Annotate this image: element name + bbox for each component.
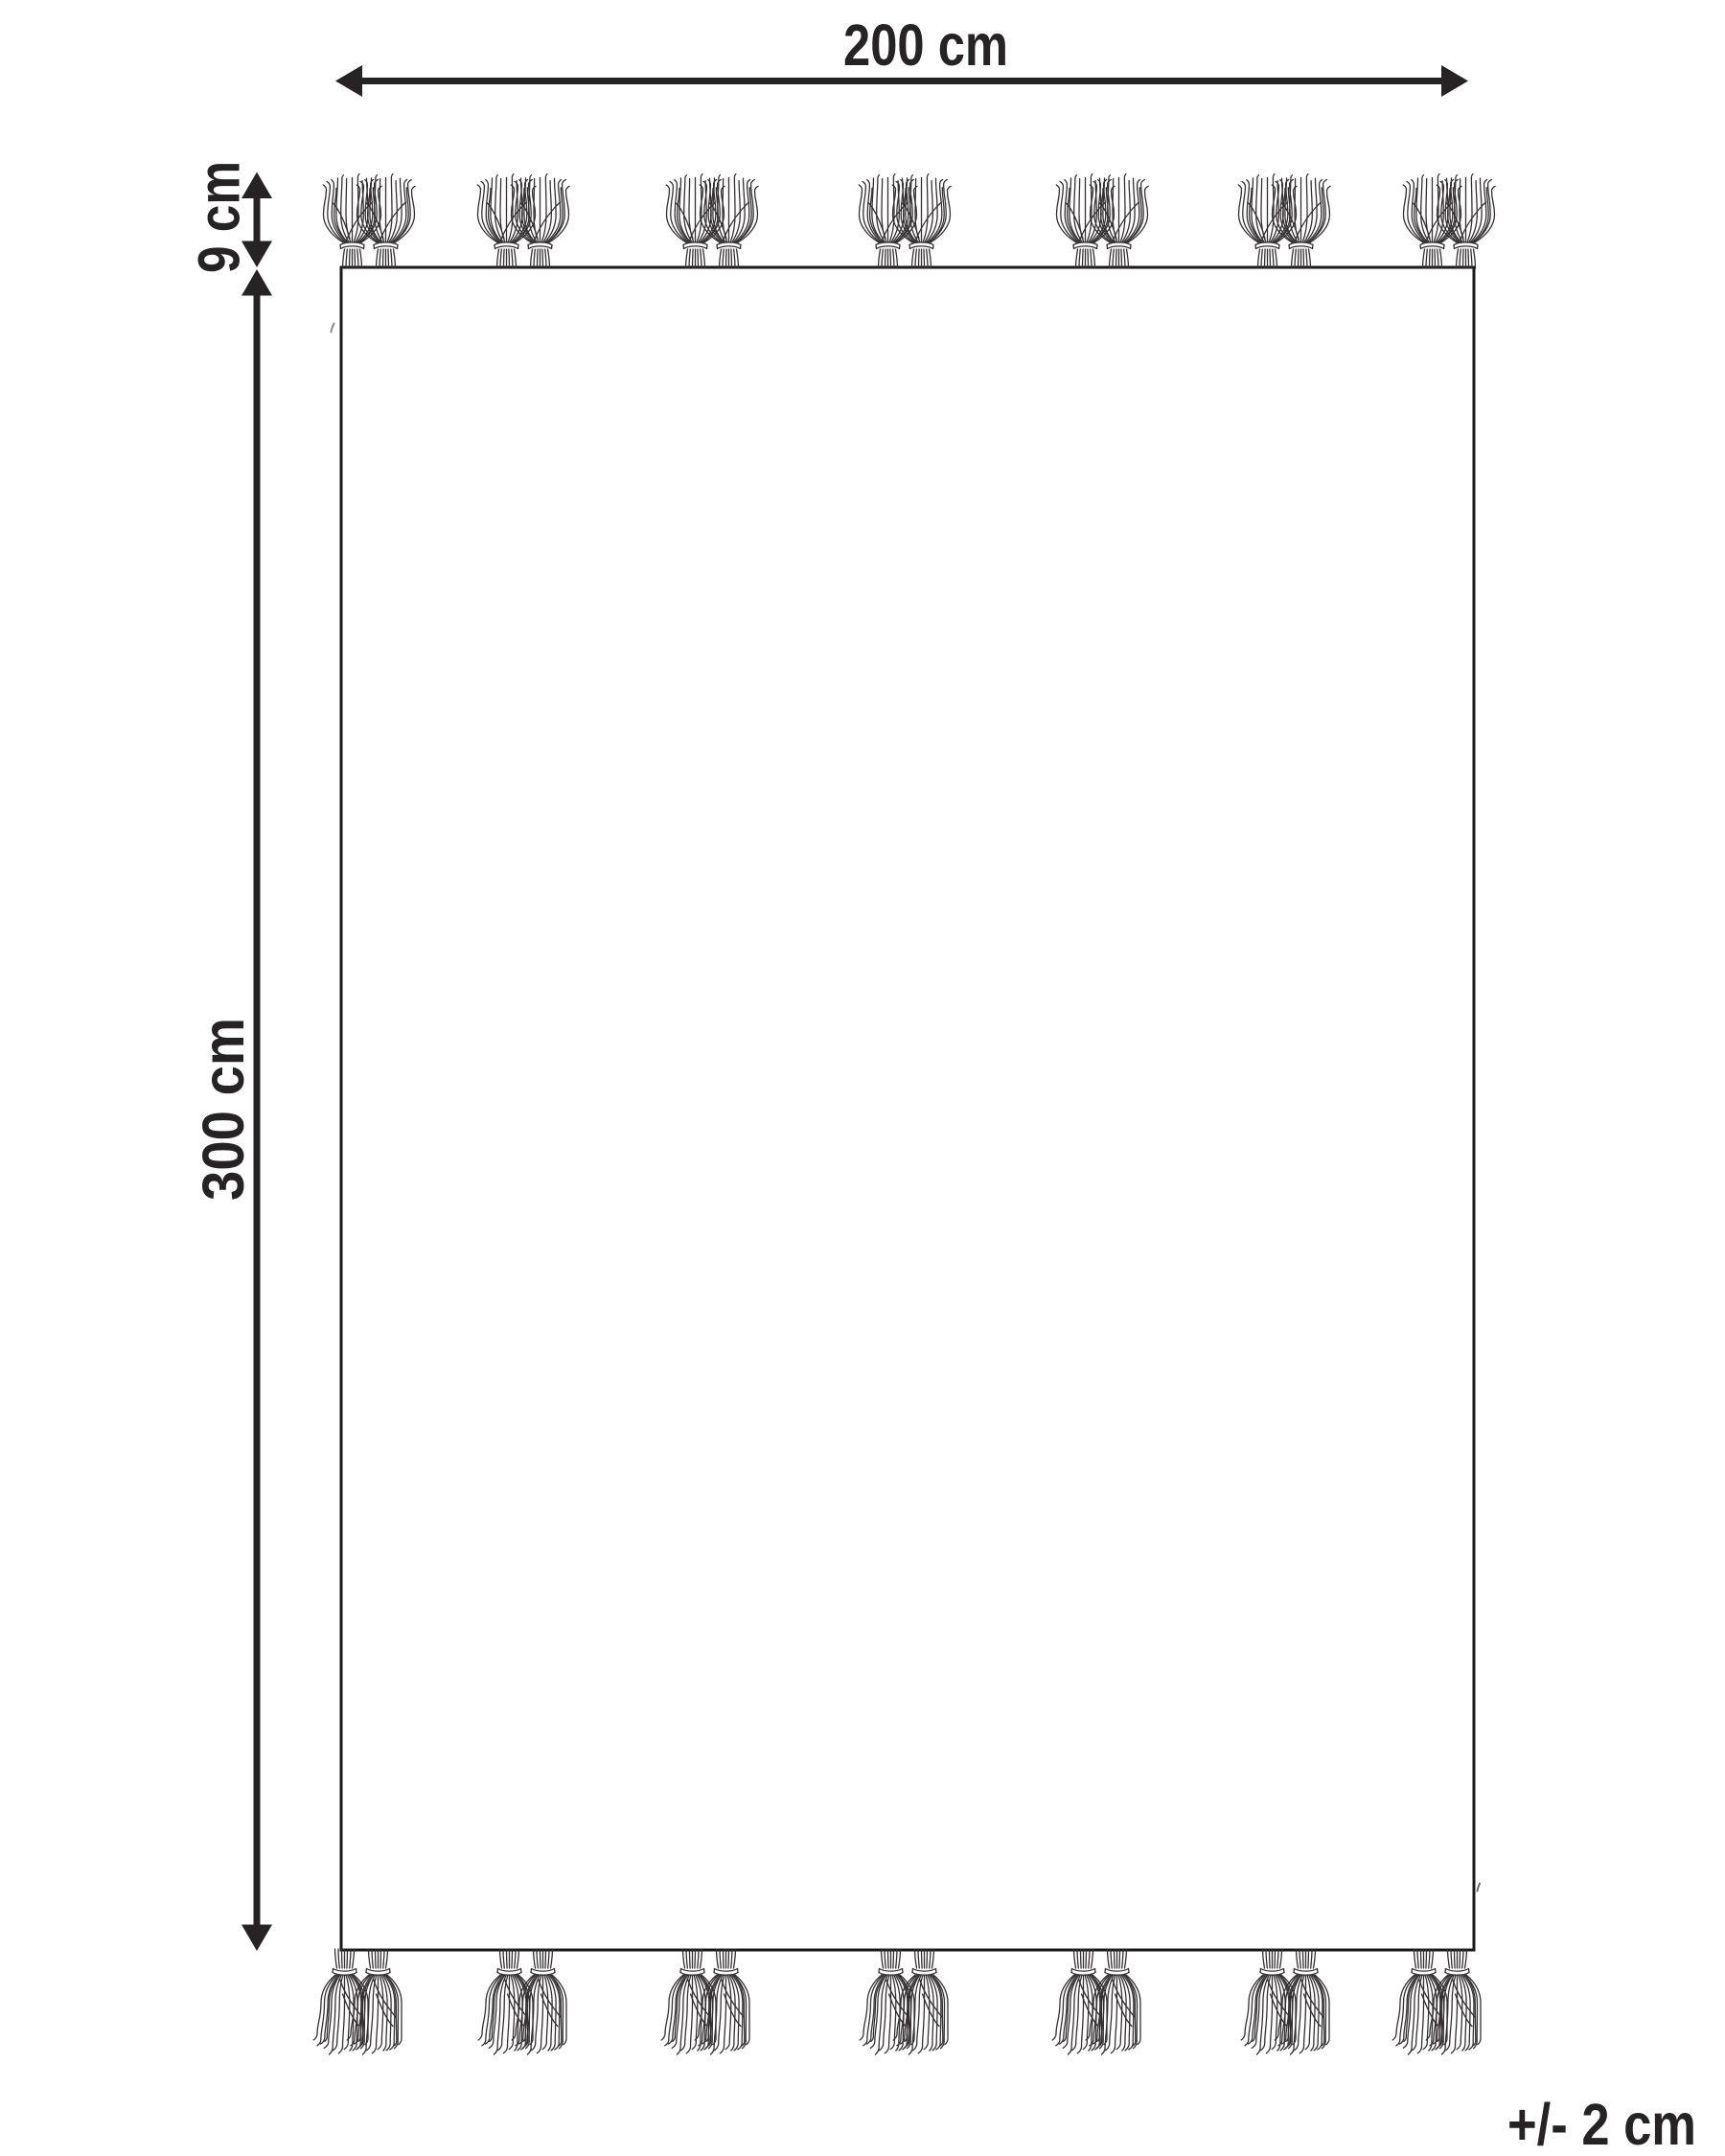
svg-text:+/- 2 cm: +/- 2 cm (1507, 2092, 1696, 2156)
svg-text:200 cm: 200 cm (843, 12, 1008, 78)
svg-text:9 cm: 9 cm (187, 161, 252, 273)
svg-text:300 cm: 300 cm (191, 1018, 256, 1201)
